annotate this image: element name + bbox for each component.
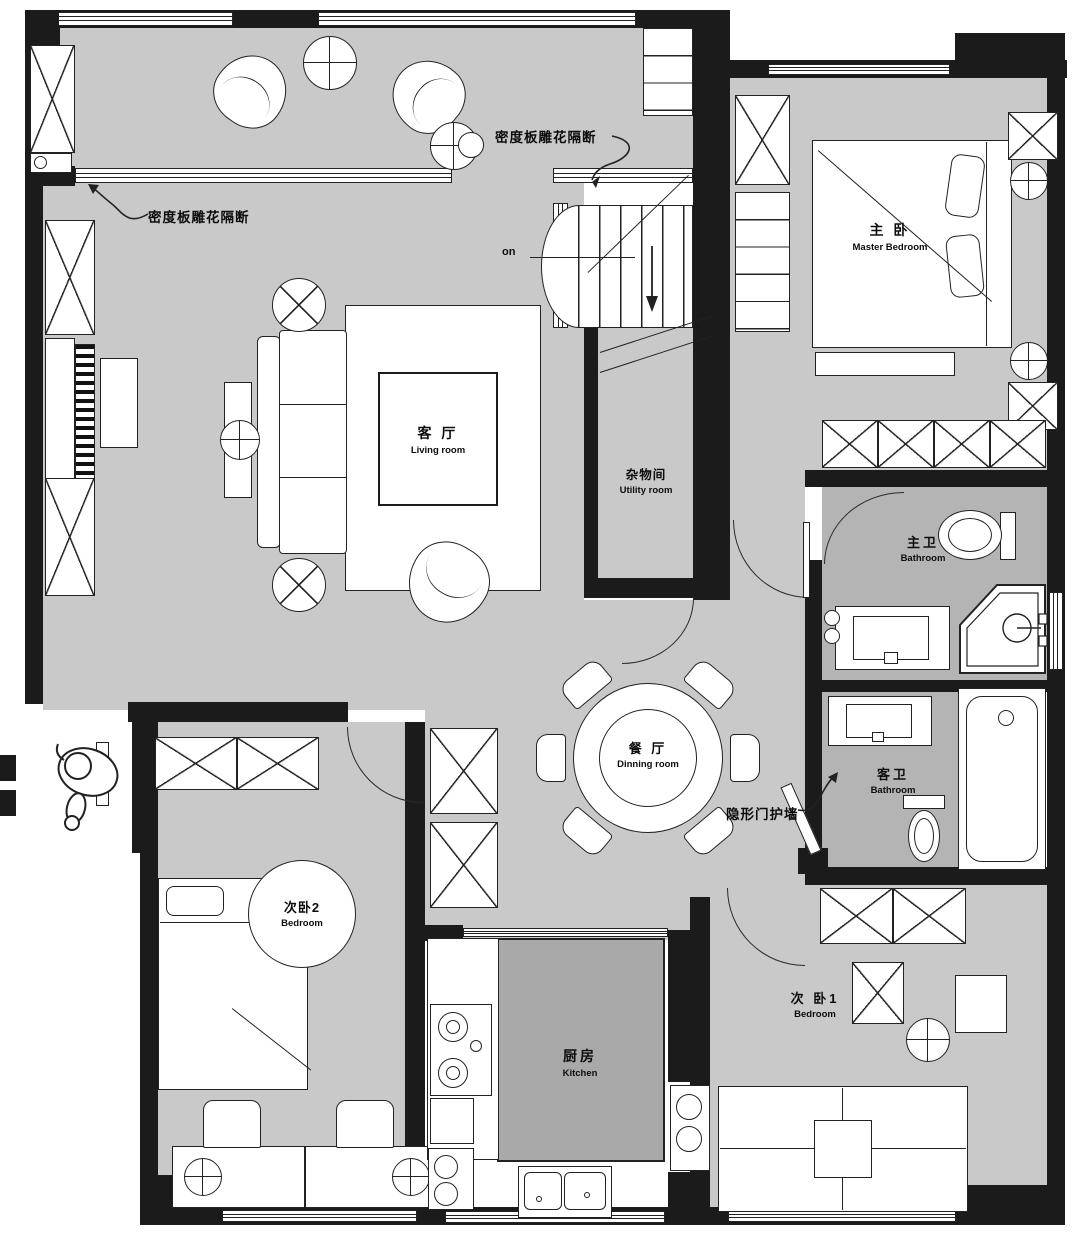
wall-segment: [805, 470, 1065, 487]
room-label-utility-en: Utility room: [620, 485, 673, 496]
wall-segment: [584, 578, 730, 598]
room-label-living-zh: 客 厅: [418, 423, 459, 443]
nightstand: [955, 975, 1007, 1033]
room-label-bedroom1-en: Bedroom: [794, 1009, 836, 1020]
room-label-living-en: Living room: [411, 445, 465, 456]
window: [222, 1210, 417, 1222]
room-label-bedroom1-zh: 次 卧1: [791, 988, 840, 1007]
window: [768, 64, 950, 75]
bed-headboard-line: [986, 142, 987, 346]
person-figure: [34, 724, 134, 834]
burner-inner: [446, 1020, 460, 1034]
burner-knob: [470, 1040, 482, 1052]
room-label-guest-bath-en: Bathroom: [871, 785, 916, 796]
entry-door-leaf: [96, 742, 109, 806]
room-label-kitchen-zh: 厨房: [563, 1046, 597, 1066]
room-label-master-en: Master Bedroom: [853, 242, 928, 253]
lounge-side-cabinet-knob: [34, 156, 47, 169]
room-label-utility-zh: 杂物间: [626, 464, 667, 483]
wardrobe: [237, 737, 319, 790]
room-label-bedroom2-zh: 次卧2: [284, 897, 320, 916]
wardrobe: [878, 420, 934, 468]
room-label-master-bath-en: Bathroom: [901, 553, 946, 564]
water-heater: [676, 1126, 702, 1152]
side-table: [272, 558, 326, 612]
sofa: [279, 330, 347, 554]
wall-segment: [584, 328, 598, 580]
shelving: [735, 192, 790, 332]
wardrobe: [893, 888, 966, 944]
window: [1049, 592, 1063, 670]
room-label-kitchen: 厨房 Kitchen: [510, 1038, 650, 1086]
wardrobe: [934, 420, 990, 468]
lounge-cabinet: [30, 45, 75, 153]
room-label-dining-zh: 餐 厅: [629, 738, 668, 757]
bathtub-drain: [998, 710, 1014, 726]
room-label-bedroom1: 次 卧1 Bedroom: [755, 982, 875, 1026]
vanity-faucet: [872, 732, 884, 742]
wall-segment: [693, 10, 730, 600]
room-label-utility: 杂物间 Utility room: [598, 458, 694, 502]
kitchen-cabinet: [430, 1098, 474, 1144]
bed-center-table: [814, 1120, 872, 1178]
toilet-bowl-inner: [914, 818, 934, 854]
wall-segment: [668, 930, 710, 1082]
desk-chair: [203, 1100, 261, 1148]
annotation-hidden-door: 隐形门护墙: [726, 803, 799, 823]
room-label-living: 客 厅 Living room: [378, 372, 498, 506]
washer-knob: [824, 610, 840, 626]
table-lamp: [1010, 342, 1048, 380]
burner-inner: [446, 1066, 460, 1080]
kitchen-sliding-door: [463, 928, 668, 937]
desk-chair: [336, 1100, 394, 1148]
side-table: [272, 278, 326, 332]
carved-partition: [75, 168, 452, 183]
wardrobe: [990, 420, 1046, 468]
cabinet-knob: [434, 1155, 458, 1179]
annotation-stair-on: on: [502, 246, 515, 258]
carved-partition: [553, 168, 693, 183]
bed-bench: [815, 352, 955, 376]
room-label-kitchen-en: Kitchen: [563, 1068, 598, 1079]
room-label-bedroom2: 次卧2 Bedroom: [248, 888, 356, 938]
table-lamp: [906, 1018, 950, 1062]
wardrobe: [45, 220, 95, 335]
cabinet-knob: [434, 1182, 458, 1206]
wardrobe: [45, 478, 95, 596]
wall-segment: [0, 790, 16, 816]
floor-plan: 客 厅 Living room 主 卧 Master Bedroom 杂物间 U…: [0, 0, 1080, 1233]
annotation-partition-top: 密度板雕花隔断: [495, 126, 597, 146]
desk-lamp: [184, 1158, 222, 1196]
floor-lamp: [458, 132, 484, 158]
washer-knob: [824, 628, 840, 644]
room-label-master-bath: 主卫 Bathroom: [868, 526, 978, 570]
floor-utility: [598, 328, 693, 578]
round-table: [303, 36, 357, 90]
dining-chair: [730, 734, 760, 782]
room-label-dining: 餐 厅 Dinning room: [599, 726, 697, 782]
sofa-back: [257, 336, 281, 548]
wall-segment: [140, 722, 158, 1215]
room-label-guest-bath: 客卫 Bathroom: [838, 758, 948, 802]
wardrobe: [820, 888, 893, 944]
plant: [220, 420, 260, 460]
water-heater: [676, 1094, 702, 1120]
room-label-master-zh: 主 卧: [870, 220, 911, 240]
sink-basin: [524, 1172, 562, 1210]
wall-segment: [0, 755, 16, 781]
wall-segment: [128, 702, 348, 722]
wall-segment: [960, 1185, 1065, 1225]
vanity-faucet: [884, 652, 898, 664]
room-label-master-bath-zh: 主卫: [907, 532, 939, 551]
hall-cabinet: [430, 822, 498, 908]
desk-lamp: [392, 1158, 430, 1196]
wardrobe: [822, 420, 878, 468]
closet: [735, 95, 790, 185]
piano-bench: [100, 358, 138, 448]
floor-lounge: [43, 28, 693, 170]
wall-segment: [668, 1172, 710, 1222]
room-label-guest-bath-zh: 客卫: [877, 764, 909, 783]
room-label-master: 主 卧 Master Bedroom: [810, 214, 970, 258]
sink-basin: [564, 1172, 606, 1210]
toilet-tank: [1000, 512, 1016, 560]
sink-drain: [584, 1192, 590, 1198]
dining-chair: [536, 734, 566, 782]
room-label-dining-en: Dinning room: [617, 759, 679, 770]
master-door-leaf: [803, 522, 810, 598]
stair-on-line: [530, 257, 635, 258]
sink-drain: [536, 1196, 542, 1202]
room-label-bedroom2-en: Bedroom: [281, 918, 323, 929]
window: [318, 12, 636, 26]
annotation-partition-left: 密度板雕花隔断: [148, 206, 250, 226]
pillow: [166, 886, 224, 916]
table-lamp: [1010, 162, 1048, 200]
window: [58, 12, 233, 26]
lounge-shelf: [643, 28, 693, 116]
hall-cabinet: [430, 728, 498, 814]
wardrobe: [155, 737, 237, 790]
nightstand: [1008, 112, 1058, 160]
